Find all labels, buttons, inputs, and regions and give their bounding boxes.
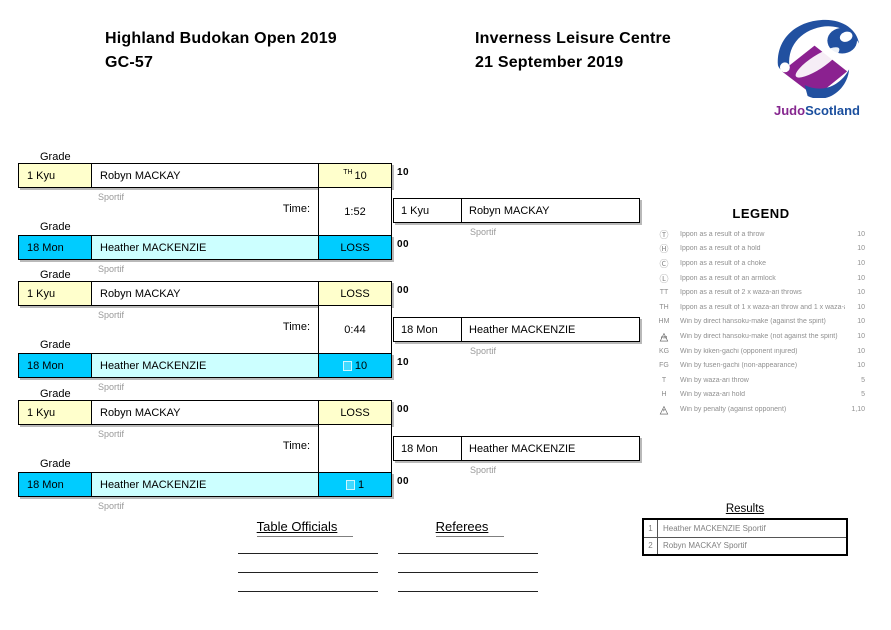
table-officials-heading: Table Officials	[240, 519, 370, 534]
player-grade: 18 Mon	[18, 472, 92, 497]
code-HM: HM	[654, 318, 674, 325]
match1-p1-points: 10	[397, 167, 409, 178]
match2-player1-row: 1 Kyu Robyn MACKAY LOSS	[18, 281, 392, 306]
player-name: Heather MACKENZIE	[91, 235, 319, 260]
event-date: 21 September 2019	[475, 54, 623, 72]
winner-grade: 18 Mon	[394, 437, 462, 460]
code-H: H	[654, 391, 674, 398]
player-club: Sportif	[98, 501, 124, 511]
judoscotland-logo: JudoScotland	[766, 14, 868, 118]
winner-name: Robyn MACKAY	[462, 199, 639, 222]
grade-label: Grade	[40, 458, 71, 470]
ippon-choke-icon: Ⓒ	[654, 257, 674, 270]
faint-score-mark	[343, 361, 352, 371]
match1-player2-row: 18 Mon Heather MACKENZIE LOSS	[18, 235, 392, 260]
tournament-sheet: Highland Budokan Open 2019 GC-57 Inverne…	[0, 0, 891, 630]
signature-line	[238, 591, 378, 592]
legend: LEGEND ⓉIppon as a result of a throw10 Ⓗ…	[648, 206, 874, 417]
legend-item: KGWin by kiken-gachi (opponent injured)1…	[648, 344, 874, 359]
match2-p2-points: 10	[397, 357, 409, 368]
winner-name: Heather MACKENZIE	[462, 318, 639, 341]
legend-item: HWin by waza-ari hold5	[648, 388, 874, 403]
score-code: TH	[343, 169, 352, 176]
results-title: Results	[642, 503, 848, 515]
result-name: Robyn MACKAY Sportif	[658, 541, 846, 550]
player-grade: 1 Kyu	[18, 163, 92, 188]
logo-word-judo: Judo	[774, 103, 805, 118]
results-row: 1 Heather MACKENZIE Sportif	[644, 520, 846, 537]
winner-grade: 1 Kyu	[394, 199, 462, 222]
time-label: Time:	[148, 321, 310, 333]
event-category: GC-57	[105, 54, 153, 72]
signature-line	[398, 572, 538, 573]
player-grade: 18 Mon	[18, 353, 92, 378]
player-grade: 18 Mon	[18, 235, 92, 260]
event-venue: Inverness Leisure Centre	[475, 30, 671, 48]
code-FG: FG	[654, 362, 674, 369]
player-name: Heather MACKENZIE	[91, 472, 319, 497]
result-rank: 1	[644, 520, 658, 537]
result-rank: 2	[644, 538, 658, 555]
score-cell: LOSS	[318, 235, 392, 260]
result-name: Heather MACKENZIE Sportif	[658, 524, 846, 533]
winner-club: Sportif	[470, 465, 496, 475]
winner-grade: 18 Mon	[394, 318, 462, 341]
legend-item: THIppon as a result of 1 x waza-ari thro…	[648, 300, 874, 315]
match2-p1-points: 00	[397, 285, 409, 296]
judoscotland-logo-icon	[769, 14, 865, 98]
code-TT: TT	[654, 289, 674, 296]
legend-item: FGWin by fusen-gachi (non-appearance)10	[648, 358, 874, 373]
legend-item: ⓉIppon as a result of a throw10	[648, 227, 874, 242]
legend-item: HMWin by direct hansoku-make (against th…	[648, 315, 874, 330]
score-cell: 1	[318, 472, 392, 497]
legend-title: LEGEND	[648, 206, 874, 221]
results-table: 1 Heather MACKENZIE Sportif 2 Robyn MACK…	[642, 518, 848, 556]
legend-item: TTIppon as a result of 2 x waza-ari thro…	[648, 285, 874, 300]
time-label: Time:	[148, 440, 310, 452]
player-name: Robyn MACKAY	[91, 400, 319, 425]
score-value: 10	[355, 360, 367, 372]
score-value: LOSS	[340, 288, 369, 300]
match-block-1: Grade 1 Kyu Robyn MACKAY TH10 Sportif Ti…	[18, 151, 392, 276]
match3-player2-row: 18 Mon Heather MACKENZIE 1	[18, 472, 392, 497]
match2-player2-row: 18 Mon Heather MACKENZIE 10	[18, 353, 392, 378]
ippon-throw-icon: Ⓣ	[654, 228, 674, 241]
grade-label: Grade	[40, 151, 71, 163]
logo-word-scotland: Scotland	[805, 103, 860, 118]
match-time: 0:44	[318, 305, 392, 354]
legend-item: ⒽIppon as a result of a hold10	[648, 242, 874, 257]
score-cell: 10	[318, 353, 392, 378]
winner-club: Sportif	[470, 346, 496, 356]
match3-p1-points: 00	[397, 404, 409, 415]
score-value: 1	[358, 479, 364, 491]
player-club: Sportif	[98, 429, 124, 439]
match1-player1-row: 1 Kyu Robyn MACKAY TH10	[18, 163, 392, 188]
match1-winner-box: 1 Kyu Robyn MACKAY	[393, 198, 640, 223]
winner-name: Heather MACKENZIE	[462, 437, 639, 460]
player-name: Robyn MACKAY	[91, 163, 319, 188]
player-grade: 1 Kyu	[18, 281, 92, 306]
logo-wordmark: JudoScotland	[766, 103, 868, 118]
match3-p2-points: 00	[397, 476, 409, 487]
results-row: 2 Robyn MACKAY Sportif	[644, 537, 846, 555]
grade-label: Grade	[40, 221, 71, 233]
referees-heading: Referees	[415, 519, 525, 534]
grade-label: Grade	[40, 388, 71, 400]
legend-item: △HMWin by direct hansoku-make (not again…	[648, 329, 874, 344]
score-cell: TH10	[318, 163, 392, 188]
faint-score-mark	[346, 480, 355, 490]
match-time	[318, 424, 392, 473]
ippon-hold-icon: Ⓗ	[654, 242, 674, 255]
legend-item: TWin by waza-ari throw5	[648, 373, 874, 388]
score-cell: LOSS	[318, 281, 392, 306]
triangle-P-icon: △P	[654, 403, 674, 416]
score-cell: LOSS	[318, 400, 392, 425]
event-title: Highland Budokan Open 2019	[105, 30, 337, 48]
match1-p2-points: 00	[397, 239, 409, 250]
time-label: Time:	[148, 203, 310, 215]
signature-line	[398, 591, 538, 592]
player-club: Sportif	[98, 192, 124, 202]
match2-winner-box: 18 Mon Heather MACKENZIE	[393, 317, 640, 342]
legend-item: ⒸIppon as a result of a choke10	[648, 256, 874, 271]
match3-player1-row: 1 Kyu Robyn MACKAY LOSS	[18, 400, 392, 425]
grade-label: Grade	[40, 339, 71, 351]
match-time: 1:52	[318, 187, 392, 236]
winner-club: Sportif	[470, 227, 496, 237]
triangle-HM-icon: △HM	[654, 330, 674, 343]
score-value: LOSS	[340, 242, 369, 254]
player-grade: 1 Kyu	[18, 400, 92, 425]
player-name: Heather MACKENZIE	[91, 353, 319, 378]
legend-item: △PWin by penalty (against opponent)1,10	[648, 402, 874, 417]
legend-item: ⓁIppon as a result of an armlock10	[648, 271, 874, 286]
player-name: Robyn MACKAY	[91, 281, 319, 306]
code-T: T	[654, 377, 674, 384]
code-TH: TH	[654, 304, 674, 311]
match-block-2: Grade 1 Kyu Robyn MACKAY LOSS Sportif Ti…	[18, 269, 392, 394]
match3-winner-box: 18 Mon Heather MACKENZIE	[393, 436, 640, 461]
score-value: LOSS	[340, 407, 369, 419]
signature-line	[398, 553, 538, 554]
code-KG: KG	[654, 348, 674, 355]
signature-line	[238, 553, 378, 554]
score-value: 10	[355, 170, 367, 182]
match-block-3: Grade 1 Kyu Robyn MACKAY LOSS Sportif Ti…	[18, 388, 392, 513]
ippon-armlock-icon: Ⓛ	[654, 272, 674, 285]
signature-line	[238, 572, 378, 573]
grade-label: Grade	[40, 269, 71, 281]
player-club: Sportif	[98, 310, 124, 320]
